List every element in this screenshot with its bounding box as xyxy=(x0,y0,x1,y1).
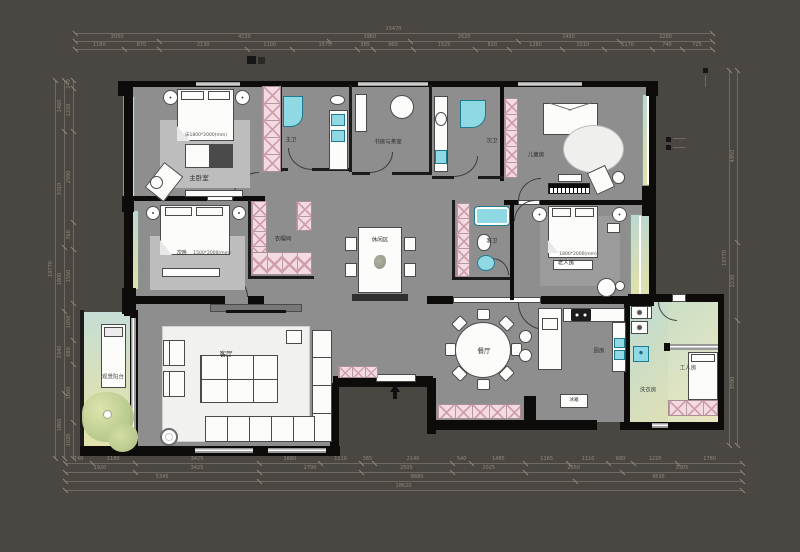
dimension-value: 1220 xyxy=(649,457,662,462)
laundry-sink xyxy=(633,346,649,362)
dining-chair xyxy=(477,309,490,320)
part-study-btm1 xyxy=(352,172,370,175)
dimension-value: 8680 xyxy=(411,475,424,480)
closet-bottom-row xyxy=(251,252,312,275)
wardrobe-kids xyxy=(504,98,518,178)
armchair xyxy=(163,371,185,397)
pillow xyxy=(208,91,230,100)
wall-dining-top-l xyxy=(427,296,453,304)
part-kids-btm2 xyxy=(540,200,650,205)
part-study-bath2 xyxy=(429,85,432,175)
entry-door-leaf xyxy=(376,374,416,382)
dining-stool xyxy=(519,330,532,343)
piano-bench xyxy=(558,174,582,182)
bed-size-annotation: 床1800*2000(mm) xyxy=(185,134,227,139)
laundry-door-leaf xyxy=(672,294,686,302)
entry-arrow-stem xyxy=(393,392,397,399)
legend-line xyxy=(673,147,686,148)
dimension-value: 18620 xyxy=(396,484,412,489)
part-bath-study xyxy=(349,85,352,172)
study-counter xyxy=(355,94,367,132)
study-round-table xyxy=(390,95,414,119)
dimension-value: 870 xyxy=(137,43,147,48)
master-tv-board xyxy=(185,190,243,197)
wall-dining-bottom xyxy=(427,420,597,430)
living-round-table xyxy=(160,428,178,446)
dimension-value: 1170 xyxy=(621,43,634,48)
dimension-value: 1180 xyxy=(107,457,120,462)
dimension-value: 2450 xyxy=(562,35,575,40)
cabinet-guestbath xyxy=(456,203,470,277)
dimension-value: 1860 xyxy=(58,419,63,432)
cabinet-maid xyxy=(668,400,718,416)
maid-partition-window xyxy=(668,344,718,350)
cabinet-entry-shoes xyxy=(338,366,378,378)
pillow xyxy=(552,208,571,217)
living-tv xyxy=(226,310,286,313)
sofa-corner-table xyxy=(286,330,302,344)
nightstand-fan xyxy=(532,207,547,222)
part-guestbath-left xyxy=(452,200,455,280)
dimension-dimline xyxy=(65,472,742,473)
balcony-rail-left xyxy=(80,310,84,456)
piano-keyboard xyxy=(548,183,590,194)
cabinet-dining-base xyxy=(437,404,521,419)
part-guestbath-btm xyxy=(452,277,512,280)
dimension-value: 760 xyxy=(67,231,72,241)
dimension-value: 2130 xyxy=(197,43,210,48)
bed-fold xyxy=(160,240,172,255)
leisure-console xyxy=(352,294,408,301)
part-bath2-btm2 xyxy=(478,176,504,179)
dimension-dimline xyxy=(75,33,712,34)
dimension-value: 2650 xyxy=(567,466,580,471)
leisure-chair xyxy=(404,237,416,251)
dimension-value: 1280 xyxy=(529,43,542,48)
sofa-bottom xyxy=(205,416,315,442)
pillow xyxy=(691,354,715,362)
legend-line xyxy=(705,75,706,87)
window-laundry-bottom xyxy=(652,423,668,428)
wall-corner-tl xyxy=(118,81,132,96)
part-study-btm2 xyxy=(392,172,432,175)
dimension-value: 2590 xyxy=(67,170,72,183)
nightstand-fan xyxy=(163,90,178,105)
dimension-value: 1550 xyxy=(67,270,72,283)
dimension-value: 820 xyxy=(488,43,498,48)
dimension-dimline xyxy=(737,70,738,445)
legend-marker xyxy=(703,68,708,73)
room-label-masterbath: 主卫 xyxy=(285,138,296,144)
room-label-balcony: 观景阳台 xyxy=(102,375,124,381)
toilet xyxy=(330,95,345,105)
pillow xyxy=(196,207,223,216)
round-basin xyxy=(477,255,495,271)
dimension-dimline xyxy=(65,490,742,491)
washer-stack xyxy=(631,306,648,319)
elder-side-table xyxy=(607,223,620,233)
dimension-value: 725 xyxy=(692,43,702,48)
dimension-value: 1460 xyxy=(58,99,63,112)
dining-chair xyxy=(445,343,456,356)
nightstand-fan xyxy=(612,207,627,222)
room-label-guestbath: 客卫 xyxy=(486,239,497,245)
dimension-dimline xyxy=(64,80,65,458)
dimension-value: 1100 xyxy=(263,43,276,48)
dimension-value: 1180 xyxy=(93,43,106,48)
kitchen-sink xyxy=(614,338,625,348)
ac-unit-marker xyxy=(258,57,265,64)
master-bench xyxy=(185,144,233,168)
dimension-value: 2050 xyxy=(111,35,124,40)
wall-maid-right xyxy=(718,294,724,430)
nightstand-fan xyxy=(235,90,250,105)
dimension-value: 3305 xyxy=(676,466,689,471)
dimension-value: 4950 xyxy=(731,150,736,163)
leisure-chair xyxy=(345,237,357,251)
part-closet-btm xyxy=(248,276,314,279)
dimension-dimline xyxy=(55,80,56,458)
part-bed2-btm1 xyxy=(127,296,225,304)
washer-stack xyxy=(631,321,648,334)
room-label-kitchen: 厨房 xyxy=(593,349,604,355)
dimension-value: 2790 xyxy=(304,466,317,471)
window-bottom-living2 xyxy=(268,448,326,453)
part-bed2-btm2 xyxy=(248,296,264,304)
dimension-value: 1485 xyxy=(492,457,505,462)
wall-fridge-side xyxy=(524,396,536,420)
wardrobe-master xyxy=(262,86,281,172)
ac-unit-marker xyxy=(247,56,256,64)
room-label-laundry: 洗衣房 xyxy=(640,388,657,394)
bay-sill xyxy=(639,216,641,296)
stove xyxy=(571,309,591,321)
dimension-value: 680 xyxy=(67,347,72,357)
window-top-study xyxy=(358,82,428,86)
basin xyxy=(331,114,345,126)
dimension-dimline xyxy=(729,70,730,445)
dimension-value: 1680 xyxy=(284,457,297,462)
wall-dining-top-r xyxy=(541,296,652,304)
dimension-value: 1575 xyxy=(318,43,331,48)
dimension-value: 1050 xyxy=(67,315,72,328)
entry-arrow-icon xyxy=(390,384,400,392)
dimension-value: 3425 xyxy=(191,457,204,462)
dimension-value: 1010 xyxy=(576,43,589,48)
kids-round-rug xyxy=(563,125,624,173)
lounge-pillow xyxy=(104,327,123,337)
pillow xyxy=(165,207,192,216)
tree-flower xyxy=(103,410,112,419)
dimension-value: 2140 xyxy=(407,457,420,462)
dimension-value: 740 xyxy=(662,43,672,48)
dimension-value: 2025 xyxy=(482,466,495,471)
dimension-value: 3590 xyxy=(731,376,736,389)
dimension-value: 2230 xyxy=(731,275,736,288)
dimension-value: 10770 xyxy=(723,250,728,266)
dimension-value: 1525 xyxy=(438,43,451,48)
room-label-living: 客厅 xyxy=(220,351,233,358)
dimension-value: 960 xyxy=(388,43,398,48)
dimension-value: 540 xyxy=(457,457,467,462)
room-label-closet: 衣帽间 xyxy=(275,237,292,243)
part-bath2-btm1 xyxy=(432,176,454,179)
room-label-master: 主卧室 xyxy=(189,175,209,182)
room-label-leisure: 休闲区 xyxy=(372,238,389,244)
legend-marker xyxy=(666,137,671,142)
room-label-maid: 工人房 xyxy=(680,366,697,372)
nightstand-fan xyxy=(232,206,246,220)
dimension-value: 1165 xyxy=(540,457,553,462)
dimension-value: 3425 xyxy=(191,466,204,471)
dimension-value: 1960 xyxy=(363,35,376,40)
window-top-master xyxy=(196,82,240,86)
dimension-value: 2260 xyxy=(659,35,672,40)
island-sink-box xyxy=(542,318,558,330)
master-chair xyxy=(150,176,163,189)
dimension-value: 4130 xyxy=(238,35,251,40)
leisure-chair xyxy=(345,263,357,277)
dimension-value: 680 xyxy=(616,457,626,462)
dimension-value: 2620 xyxy=(458,35,471,40)
window-bottom-living1 xyxy=(195,448,253,453)
part-guestbath-elder xyxy=(510,200,514,300)
dimension-value: 1220 xyxy=(67,103,72,116)
dimension-value: 1020 xyxy=(67,434,72,447)
bathtub xyxy=(474,206,510,226)
dimension-value: 4595 xyxy=(652,475,665,480)
dimension-value: 15470 xyxy=(386,27,402,32)
dining-stool xyxy=(519,349,532,362)
window-top-kids xyxy=(518,82,582,86)
dimension-value: 1660 xyxy=(67,387,72,400)
bedroom2-dresser xyxy=(162,268,220,277)
shower-master xyxy=(283,96,303,127)
sofa-right xyxy=(312,330,332,442)
toilet xyxy=(435,112,447,126)
dimension-value: 1920 xyxy=(94,466,107,471)
basin xyxy=(435,150,447,164)
dimension-value: 5345 xyxy=(156,475,169,480)
dimension-value: 1780 xyxy=(703,457,716,462)
legend-line xyxy=(673,138,686,139)
part-masterbath-btm1 xyxy=(282,168,288,171)
wall-laundry-bottom xyxy=(620,422,724,430)
dimension-value: 10770 xyxy=(49,261,54,277)
elder-round-chair xyxy=(597,278,616,297)
legend-marker xyxy=(666,145,671,150)
dimension-value: 1110 xyxy=(334,457,347,462)
kitchen-sink xyxy=(614,350,625,360)
dimension-value: 2505 xyxy=(400,466,413,471)
dimension-value: 1110 xyxy=(582,457,595,462)
pillow xyxy=(575,208,594,217)
room-label-kids: 儿童房 xyxy=(528,153,545,159)
room-label-dining: 餐厅 xyxy=(478,348,491,355)
floor-plan-canvas: 1547020504130196026202450226011808702130… xyxy=(0,0,800,552)
bed-size-annotation: 1500*2000(mm) xyxy=(193,252,230,257)
nightstand-fan xyxy=(146,206,160,220)
bed-size-annotation: 1800*2000(mm) xyxy=(559,253,596,258)
pillow xyxy=(181,91,204,100)
maid-partition-end xyxy=(664,343,670,351)
basin xyxy=(331,130,345,142)
dimension-value: 385 xyxy=(360,43,370,48)
dimension-value: 2340 xyxy=(58,345,63,358)
closet-right-col xyxy=(296,201,312,231)
dimension-dimline xyxy=(65,481,742,482)
leisure-chair xyxy=(404,263,416,277)
dining-chair xyxy=(477,379,490,390)
dimension-dimline xyxy=(73,80,74,458)
dimension-value: 1800 xyxy=(58,273,63,286)
dimension-dimline xyxy=(75,49,712,50)
fridge-label: 冰箱 xyxy=(570,399,579,404)
armchair xyxy=(163,340,185,366)
bed-fold xyxy=(548,240,559,253)
kids-stool xyxy=(612,171,625,184)
elder-side-round xyxy=(615,281,625,291)
dimension-value: 3310 xyxy=(58,183,63,196)
room-label-study: 书房与茶室 xyxy=(374,140,402,146)
room-label-bedroom2: 次卧 xyxy=(176,251,187,257)
coffee-table xyxy=(200,355,278,403)
dimension-dimline xyxy=(65,463,742,464)
wall-corner-tr xyxy=(646,81,658,96)
room-label-bath2: 次卫 xyxy=(486,139,497,145)
room-label-elder: 老人房 xyxy=(558,261,575,267)
